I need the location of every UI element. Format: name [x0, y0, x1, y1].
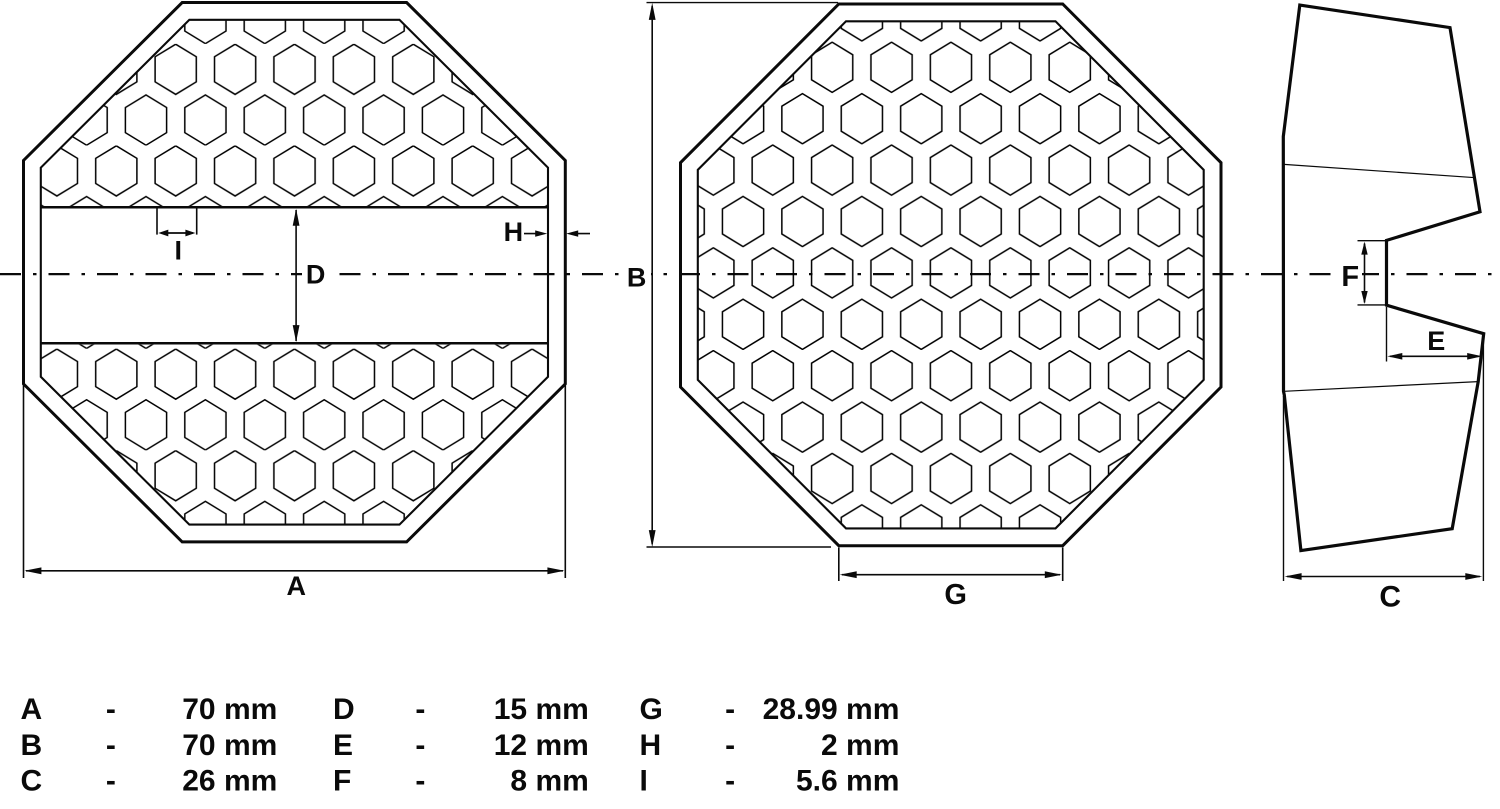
svg-text:-: -	[725, 765, 735, 798]
svg-text:2 mm: 2 mm	[821, 729, 899, 762]
svg-text:B: B	[21, 729, 43, 762]
svg-text:28.99 mm: 28.99 mm	[763, 693, 900, 726]
svg-text:-: -	[106, 765, 116, 798]
svg-text:C: C	[1379, 581, 1401, 614]
svg-text:A: A	[21, 693, 43, 726]
svg-text:I: I	[640, 765, 648, 798]
svg-text:D: D	[333, 693, 355, 726]
svg-text:5.6 mm: 5.6 mm	[796, 765, 899, 798]
svg-text:F: F	[333, 765, 351, 798]
svg-text:-: -	[415, 693, 425, 726]
svg-text:70 mm: 70 mm	[182, 729, 277, 762]
svg-text:26 mm: 26 mm	[182, 765, 277, 798]
svg-text:G: G	[640, 693, 663, 726]
svg-text:G: G	[944, 579, 967, 611]
svg-text:-: -	[415, 729, 425, 762]
svg-text:15 mm: 15 mm	[494, 693, 589, 726]
svg-text:8 mm: 8 mm	[510, 765, 588, 798]
svg-text:E: E	[333, 729, 353, 762]
svg-text:-: -	[725, 693, 735, 726]
svg-text:E: E	[1427, 326, 1445, 356]
svg-text:D: D	[306, 259, 326, 289]
svg-text:C: C	[21, 765, 43, 798]
svg-text:12 mm: 12 mm	[494, 729, 589, 762]
svg-text:-: -	[415, 765, 425, 798]
svg-text:-: -	[725, 729, 735, 762]
svg-text:B: B	[627, 263, 647, 293]
svg-text:I: I	[175, 235, 183, 265]
svg-text:70 mm: 70 mm	[182, 693, 277, 726]
svg-text:H: H	[504, 217, 524, 247]
svg-text:H: H	[640, 729, 662, 762]
svg-text:-: -	[106, 693, 116, 726]
svg-text:A: A	[287, 571, 307, 601]
svg-text:-: -	[106, 729, 116, 762]
svg-text:F: F	[1341, 261, 1359, 293]
